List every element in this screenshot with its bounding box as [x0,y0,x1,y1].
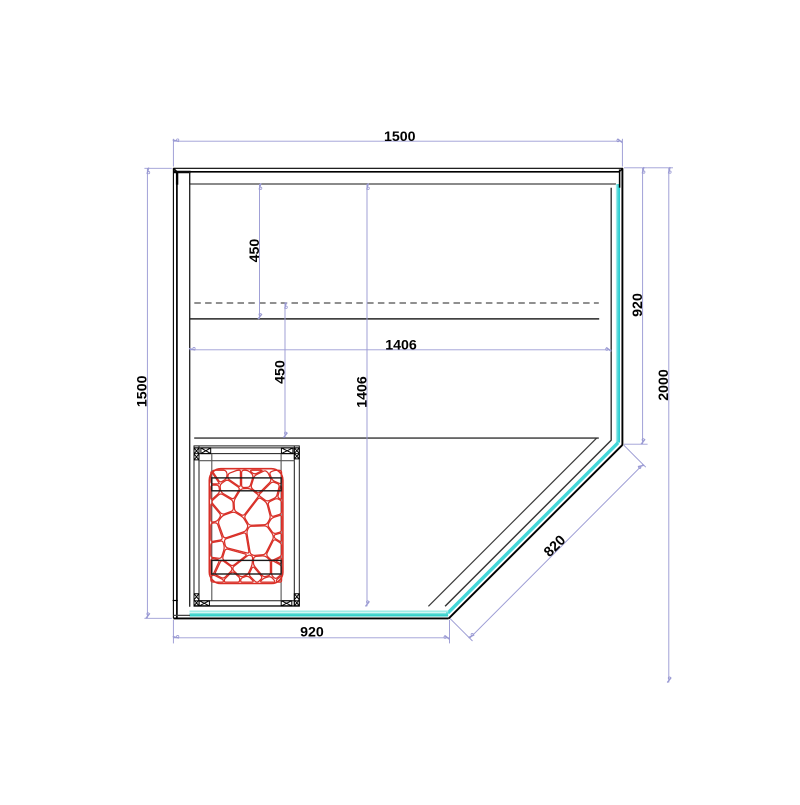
svg-text:1406: 1406 [385,337,417,353]
svg-text:920: 920 [300,625,324,641]
svg-text:450: 450 [247,239,263,263]
svg-text:450: 450 [272,360,288,384]
svg-text:1500: 1500 [384,129,416,145]
svg-text:1406: 1406 [354,376,370,408]
svg-text:920: 920 [630,293,646,317]
svg-text:1500: 1500 [135,375,151,407]
svg-text:2000: 2000 [656,369,672,401]
